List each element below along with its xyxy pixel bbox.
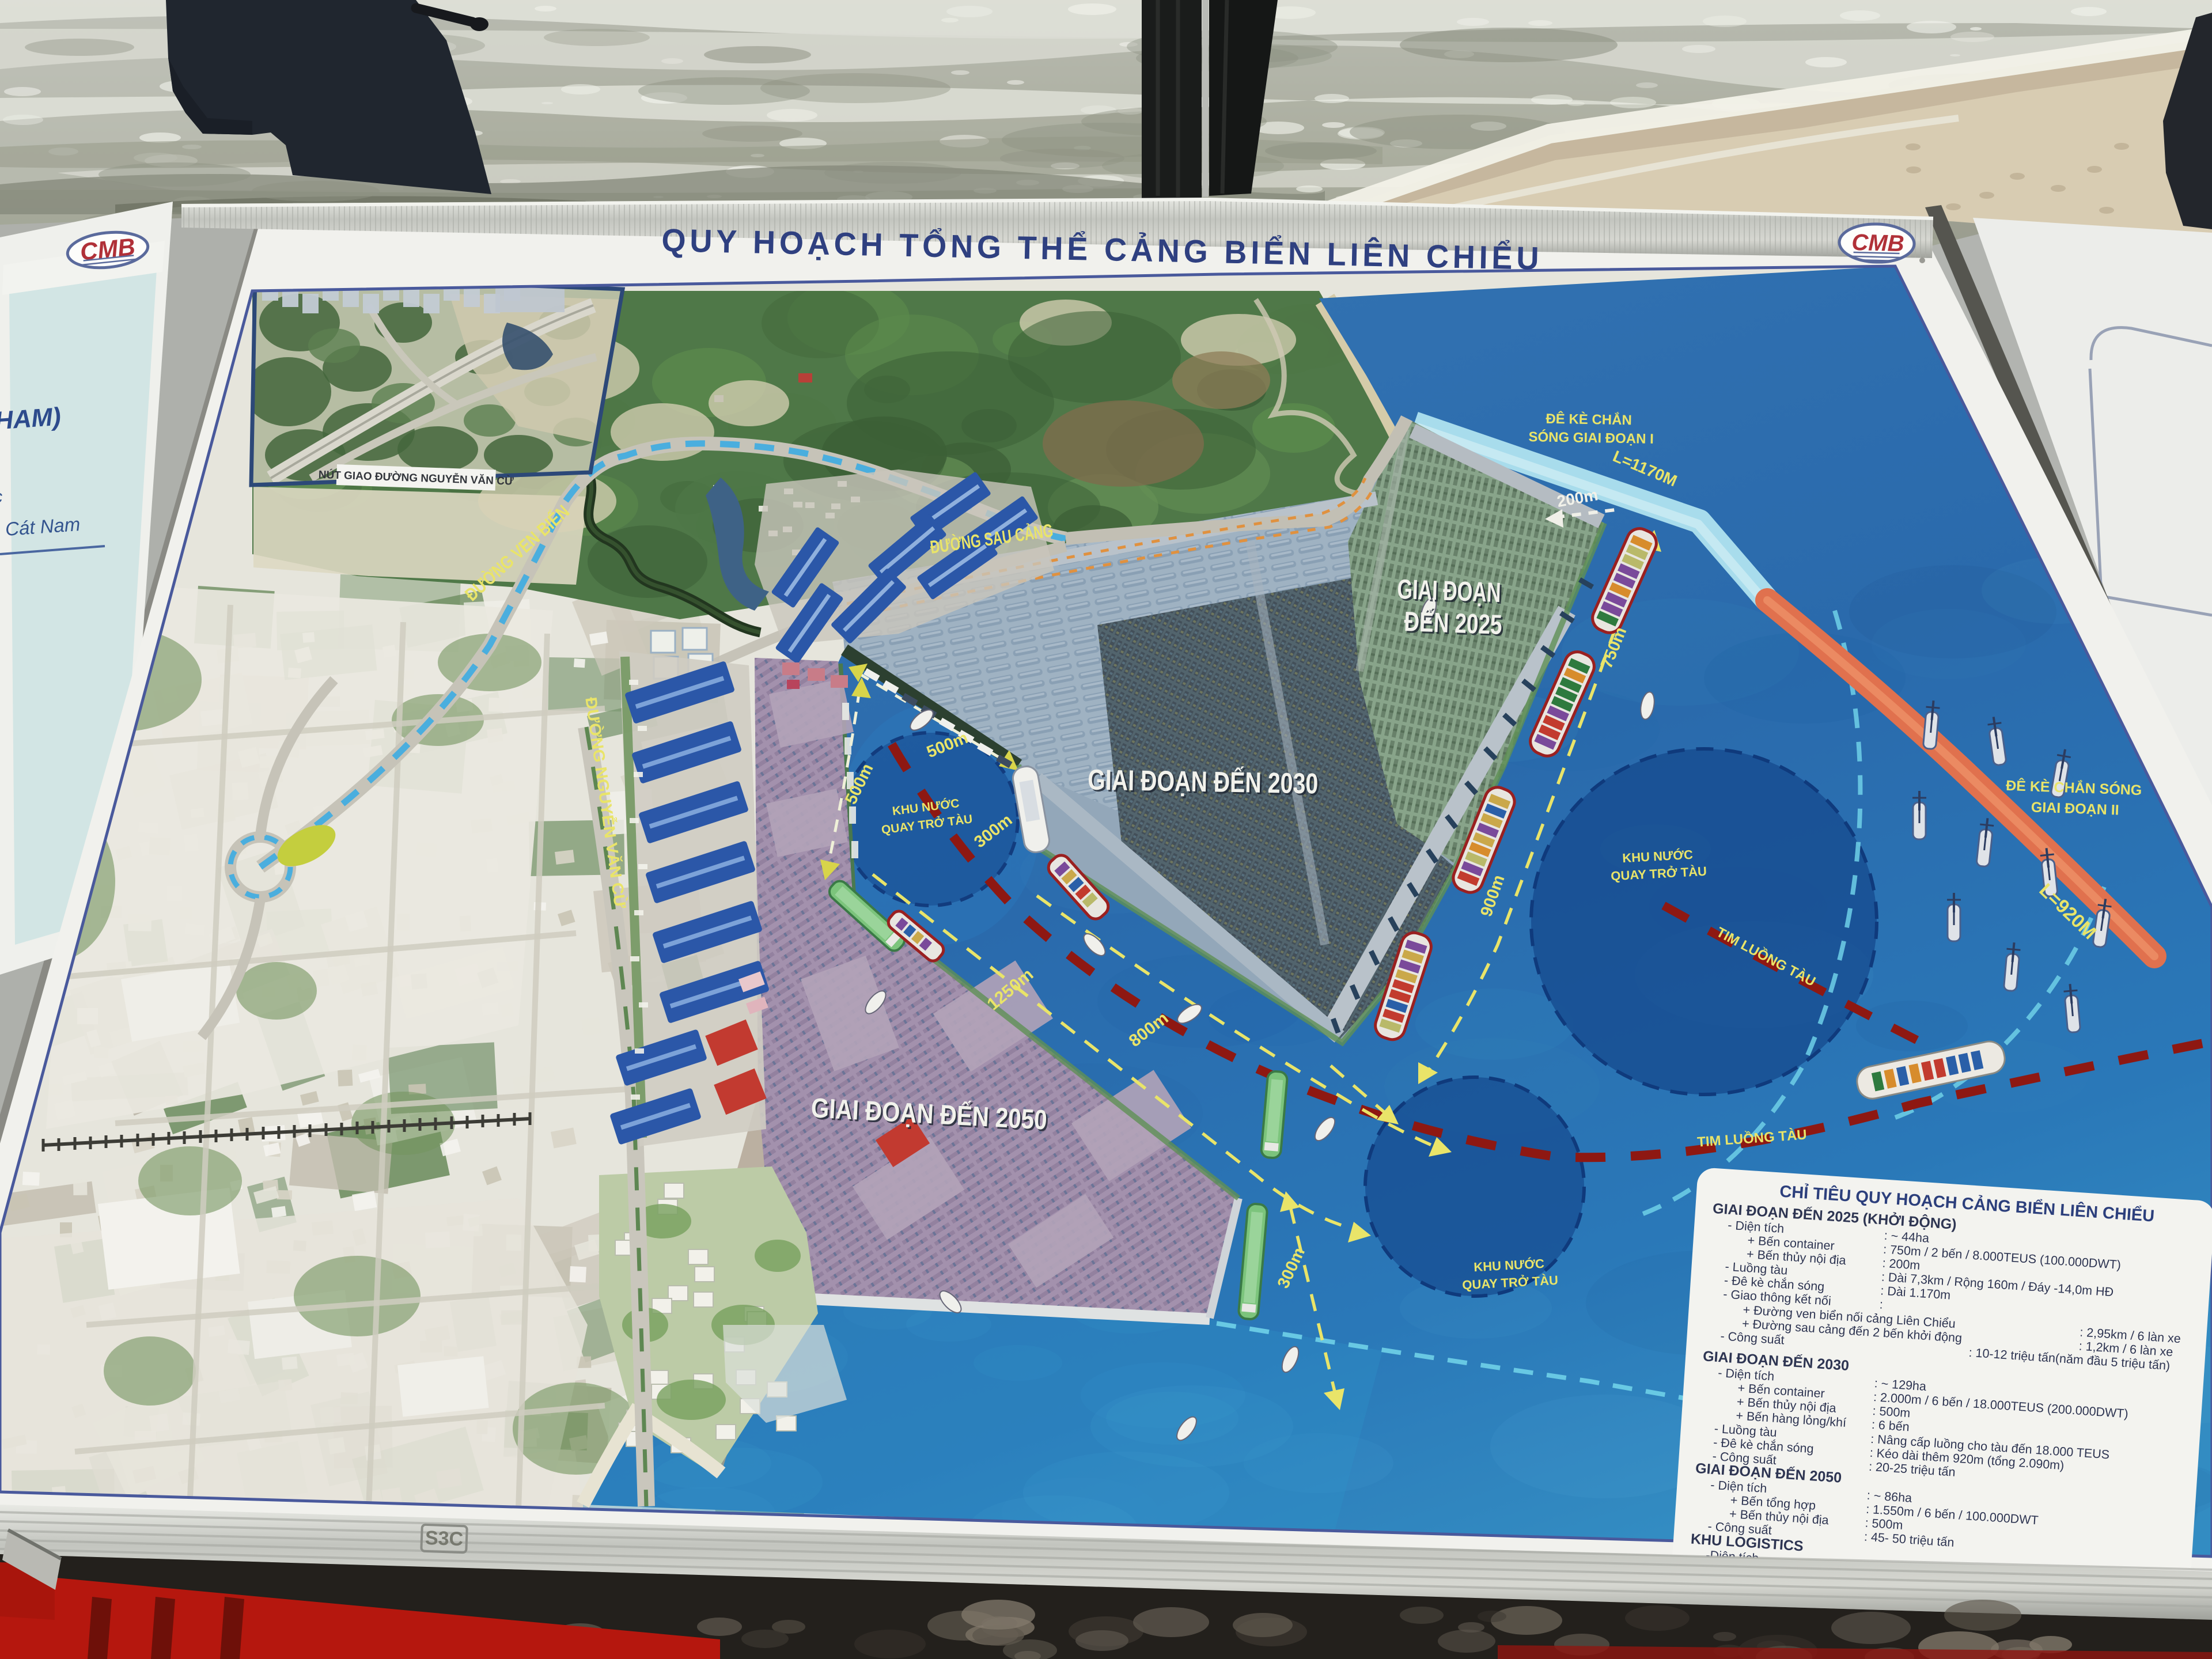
svg-text:: 6 bến: : 6 bến	[1871, 1418, 1910, 1434]
svg-text:GIAI ĐOẠN II: GIAI ĐOẠN II	[2031, 799, 2119, 818]
svg-text:GIAI ĐOẠN: GIAI ĐOẠN	[1397, 574, 1502, 608]
svg-text:HAM): HAM)	[0, 403, 62, 435]
svg-text:S3C: S3C	[425, 1527, 463, 1550]
svg-text:ĐẾN 2025: ĐẾN 2025	[1404, 606, 1503, 641]
svg-text:ĐÊ KÈ CHẮN: ĐÊ KÈ CHẮN	[1546, 411, 1632, 429]
svg-text:SÓNG GIAI ĐOẠN I: SÓNG GIAI ĐOẠN I	[1528, 429, 1654, 447]
svg-text:GIAI ĐOẠN ĐẾN 2030: GIAI ĐOẠN ĐẾN 2030	[1088, 764, 1319, 800]
